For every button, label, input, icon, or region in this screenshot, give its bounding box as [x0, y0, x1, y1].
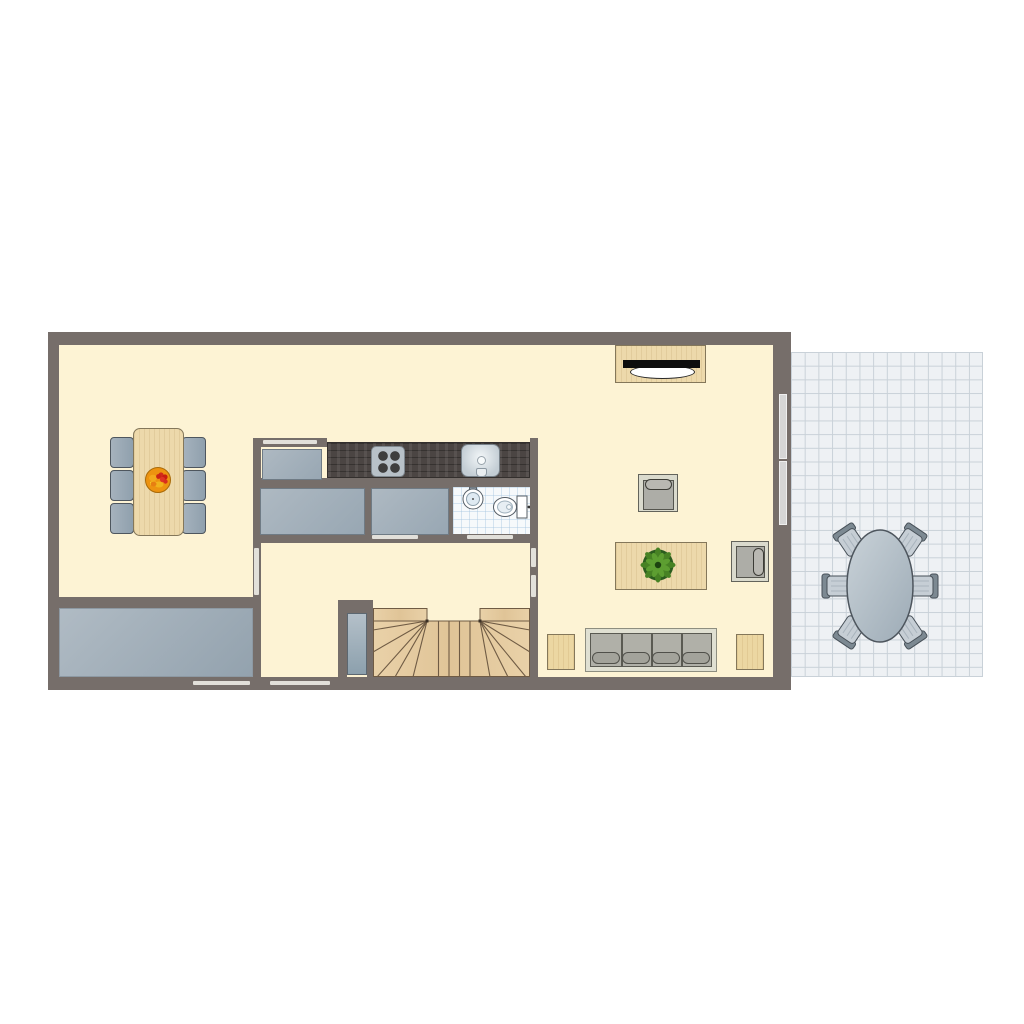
armchair-right: [731, 541, 769, 582]
fruit-bowl: [144, 466, 172, 494]
wall-nook-left: [338, 600, 347, 677]
door-opening-hall-right-2: [531, 575, 536, 597]
balcony-floor: [59, 608, 253, 677]
wall-balcony-right: [253, 597, 261, 677]
door-opening-hall-left: [254, 548, 259, 595]
dining-chair: [110, 470, 134, 501]
kitchen-island: [260, 488, 365, 535]
armchair-cushion: [645, 479, 672, 490]
kitchen-sink: [461, 444, 500, 477]
entry-door-opening-right: [270, 681, 330, 685]
toilet-tank: [517, 496, 527, 518]
sofa-seat-cushion: [592, 652, 620, 664]
window-right-2: [779, 461, 787, 525]
entry-door-opening-left: [193, 681, 250, 685]
sofa-backrest: [590, 633, 712, 667]
kitchen-island: [371, 488, 449, 535]
bathroom-floor: [453, 487, 530, 534]
stair-landing-right: [480, 609, 530, 622]
wall-balcony-top: [59, 597, 261, 608]
door-opening-bathroom: [467, 535, 513, 539]
door-opening-island: [372, 535, 418, 539]
bathroom-fixtures: [453, 487, 530, 534]
armchair-cushion: [753, 548, 764, 576]
staircase: [373, 608, 530, 677]
flush-button: [528, 506, 530, 509]
house: [48, 332, 791, 690]
sofa: [585, 628, 717, 672]
window-right-1: [779, 394, 787, 459]
dining-chair: [182, 437, 206, 468]
side-table-right: [736, 634, 764, 670]
stair-landing-left: [374, 609, 428, 622]
dining-chair: [182, 470, 206, 501]
sofa-seat-cushion: [682, 652, 710, 664]
door-opening-hall-right-1: [531, 548, 536, 567]
dining-chair: [110, 503, 134, 534]
potted-plant: [640, 547, 676, 583]
sideboard: [615, 345, 706, 383]
dining-chair: [110, 437, 134, 468]
armchair-top: [638, 474, 678, 512]
door-opening-kitchen-top: [263, 440, 317, 444]
side-table-left: [547, 634, 575, 670]
sofa-seat-cushion: [622, 652, 650, 664]
patio-terrace: [791, 352, 983, 677]
patio-table: [847, 530, 913, 642]
sofa-seat-cushion: [652, 652, 680, 664]
fridge-cabinet: [262, 449, 322, 480]
hallway-door: [347, 613, 367, 675]
patio-dining-set: [791, 352, 983, 677]
floor-plan-canvas: [0, 0, 1024, 1024]
dining-chair: [182, 503, 206, 534]
tv: [623, 360, 700, 368]
stove-cooktop: [371, 446, 405, 477]
